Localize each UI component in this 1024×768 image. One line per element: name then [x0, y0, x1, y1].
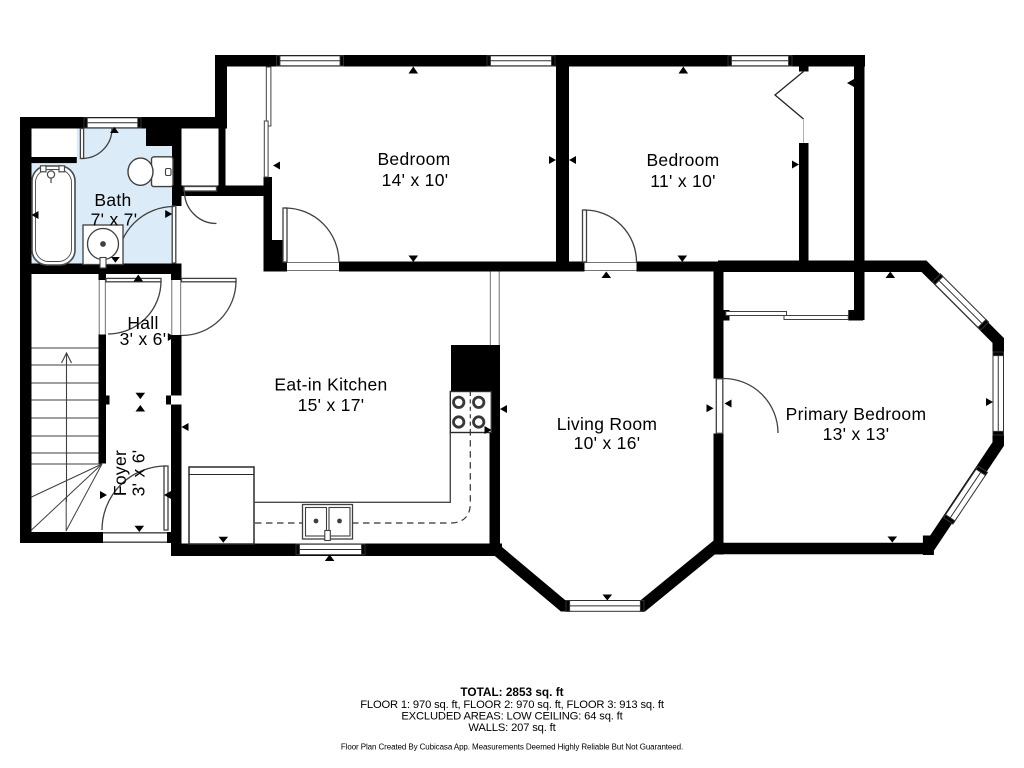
svg-text:WALLS: 207 sq. ft: WALLS: 207 sq. ft	[468, 722, 556, 734]
svg-text:Primary Bedroom: Primary Bedroom	[786, 404, 927, 424]
svg-text:13' x 13': 13' x 13'	[823, 424, 890, 444]
svg-text:Floor Plan Created By Cubicasa: Floor Plan Created By Cubicasa App. Meas…	[341, 743, 683, 752]
svg-text:Eat-in Kitchen: Eat-in Kitchen	[274, 375, 387, 395]
svg-text:Foyer: Foyer	[110, 450, 130, 496]
svg-text:10' x 16': 10' x 16'	[574, 433, 641, 453]
svg-text:Bedroom: Bedroom	[646, 150, 719, 170]
svg-text:TOTAL: 2853 sq. ft: TOTAL: 2853 sq. ft	[460, 685, 563, 699]
svg-text:Bath: Bath	[94, 190, 131, 210]
svg-text:FLOOR 1: 970 sq. ft, FLOOR 2:: FLOOR 1: 970 sq. ft, FLOOR 2: 970 sq. ft…	[360, 699, 665, 711]
svg-text:11' x 10': 11' x 10'	[650, 171, 716, 191]
svg-text:15' x 17': 15' x 17'	[298, 395, 365, 415]
svg-text:14' x 10': 14' x 10'	[382, 170, 449, 190]
svg-text:Living Room: Living Room	[557, 414, 658, 434]
svg-text:3' x 6': 3' x 6'	[120, 329, 167, 349]
svg-text:Bedroom: Bedroom	[377, 149, 450, 169]
svg-text:7' x 7': 7' x 7'	[91, 210, 138, 230]
svg-text:EXCLUDED AREAS: LOW CEILING: 6: EXCLUDED AREAS: LOW CEILING: 64 sq. ft	[401, 711, 623, 723]
svg-text:3' x 6': 3' x 6'	[129, 450, 149, 497]
